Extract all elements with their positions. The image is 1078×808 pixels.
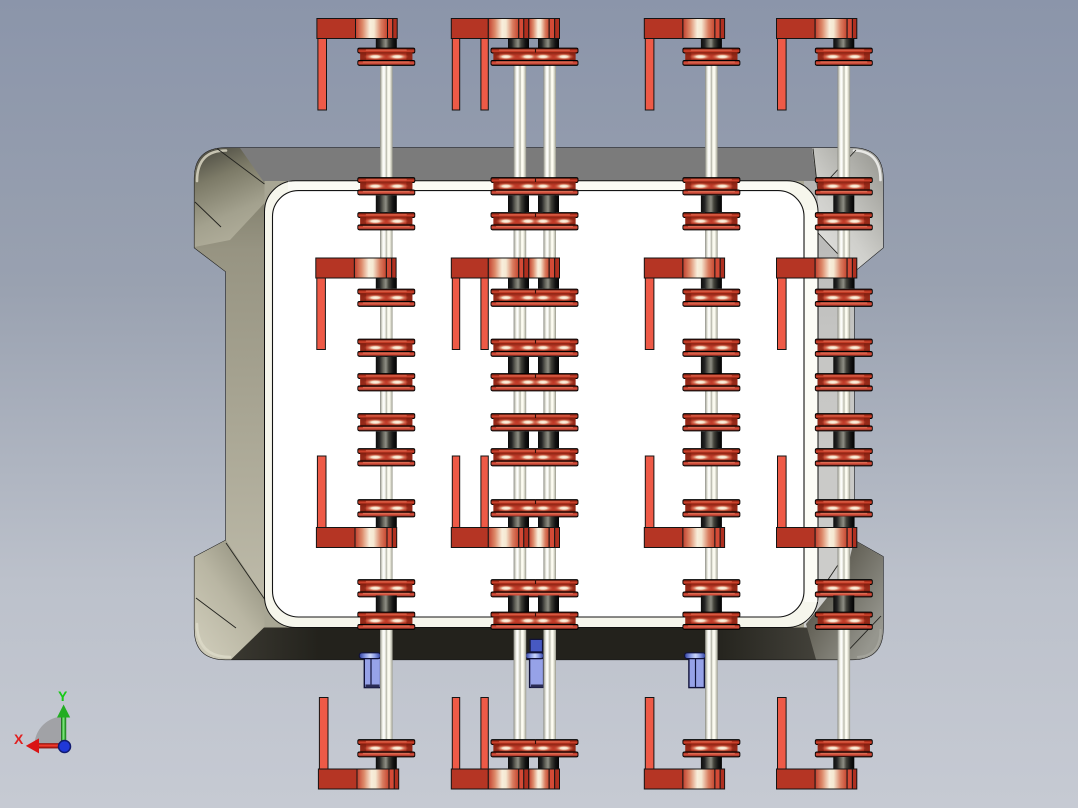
svg-text:X: X <box>14 731 24 747</box>
svg-text:Y: Y <box>58 688 68 704</box>
